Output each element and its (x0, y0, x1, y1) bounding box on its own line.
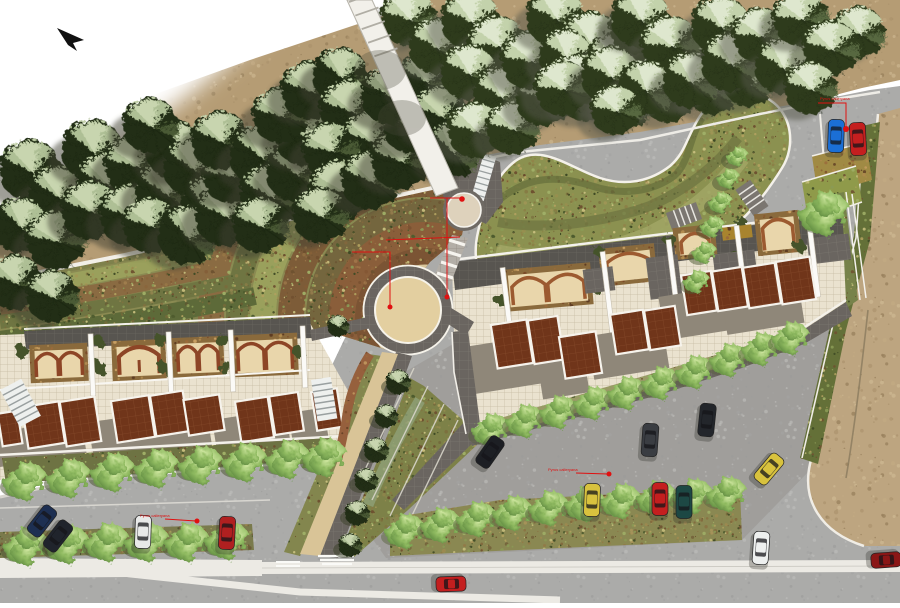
svg-text:Pyrus calleryana: Pyrus calleryana (140, 513, 170, 518)
svg-text:Pyrus calleryana: Pyrus calleryana (548, 467, 578, 472)
svg-text:Pyrus calleryana: Pyrus calleryana (820, 96, 850, 101)
